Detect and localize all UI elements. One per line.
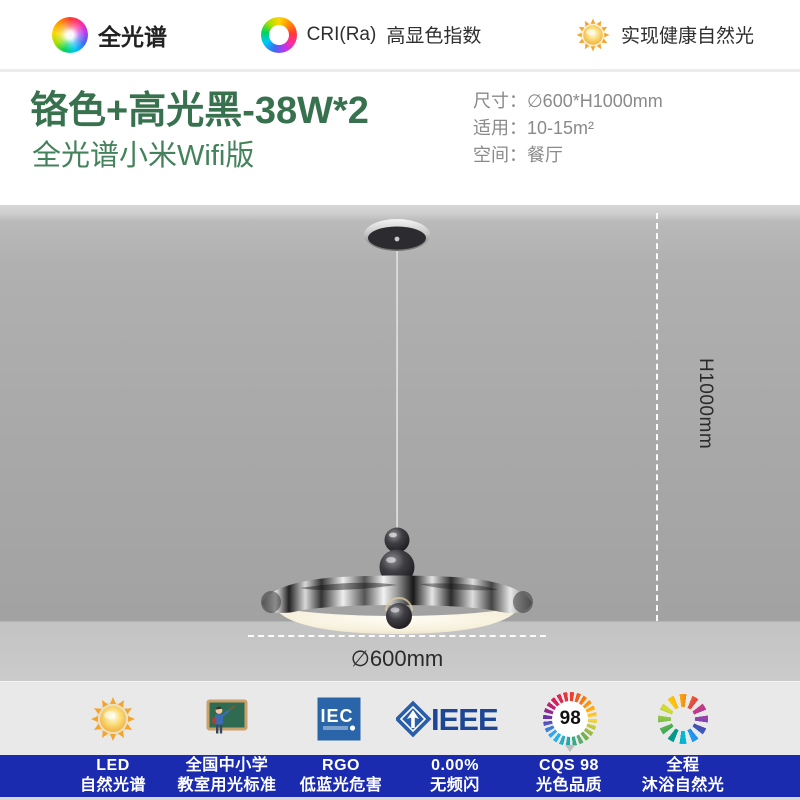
classroom-icon <box>201 695 251 743</box>
benefit-cri: CRI(Ra) 高显色指数 <box>261 17 482 53</box>
spec-area-label: 适用： <box>473 115 527 142</box>
iec-logo: IEC <box>316 696 362 742</box>
height-dimension-line <box>656 213 658 621</box>
label-line1: 全程 <box>666 756 699 776</box>
sun-icon <box>575 17 611 53</box>
iec-logo-text: IEC <box>320 706 353 726</box>
height-dimension-label: H1000mm <box>694 358 716 449</box>
spec-size: 尺寸： ∅600*H1000mm <box>473 88 663 115</box>
certification-icons: IEC IEEE 98 <box>0 680 800 755</box>
label-rgo: RGO 低蓝光危害 <box>284 756 398 796</box>
cqs-value: 98 <box>543 692 597 746</box>
spec-list: 尺寸： ∅600*H1000mm 适用： 10-15m² 空间： 餐厅 <box>473 88 663 169</box>
label-line1: CQS 98 <box>539 756 599 776</box>
ieee-logo: IEEE <box>396 696 514 742</box>
benefit-natural-light: 实现健康自然光 <box>575 17 754 53</box>
product-subtitle: 全光谱小米Wifi版 <box>32 138 369 174</box>
cri-sublabel: 高显色指数 <box>386 21 481 48</box>
cqs-badge-icon: 98 <box>543 692 597 746</box>
product-photo: H1000mm ∅600mm <box>0 205 800 680</box>
label-flicker: 0.00% 无频闪 <box>398 756 512 796</box>
ceiling-canopy <box>364 219 430 251</box>
spectrum-wheel-icon <box>52 17 88 53</box>
badge-ieee: IEEE <box>396 696 514 742</box>
spec-room-value: 餐厅 <box>527 142 563 169</box>
badge-cqs: 98 <box>514 692 627 746</box>
pendant-lamp <box>0 205 800 680</box>
label-classroom: 全国中小学 教室用光标准 <box>170 756 284 796</box>
cri-label: CRI(Ra) <box>307 24 377 46</box>
badge-classroom <box>169 695 282 743</box>
label-line1: 全国中小学 <box>186 756 269 776</box>
product-card: 全光谱 CRI(Ra) 高显色指数 实现健康自然光 <box>0 0 800 800</box>
label-line2: 沐浴自然光 <box>642 776 725 796</box>
label-natural: 全程 沐浴自然光 <box>626 756 740 796</box>
product-titles: 铬色+高光黑-38W*2 全光谱小米Wifi版 <box>30 88 369 174</box>
ieee-logo-text: IEEE <box>431 702 498 737</box>
spec-size-label: 尺寸： <box>473 88 527 115</box>
label-line1: RGO <box>322 756 360 776</box>
label-line2: 光色品质 <box>536 776 602 796</box>
diameter-dimension-label: ∅600mm <box>297 646 497 672</box>
label-cqs: CQS 98 光色品质 <box>512 756 626 796</box>
badge-iec: IEC <box>282 696 395 742</box>
spec-area: 适用： 10-15m² <box>473 115 663 142</box>
sun-icon <box>89 695 137 743</box>
top-benefit-bar: 全光谱 CRI(Ra) 高显色指数 实现健康自然光 <box>0 0 800 72</box>
diameter-dimension-line <box>248 635 546 637</box>
spec-size-value: ∅600*H1000mm <box>527 88 663 115</box>
spectrum-spinner-icon <box>658 694 708 744</box>
natural-light-label: 实现健康自然光 <box>621 21 754 48</box>
label-line1: LED <box>96 756 130 776</box>
product-title: 铬色+高光黑-38W*2 <box>30 88 369 134</box>
cqs-tail <box>565 745 575 752</box>
cri-ring-icon <box>261 17 297 53</box>
badge-spectrum <box>627 694 740 744</box>
benefit-label: 全光谱 <box>98 18 167 52</box>
spec-room-label: 空间： <box>473 142 527 169</box>
label-line2: 教室用光标准 <box>177 776 276 796</box>
label-line2: 无频闪 <box>430 776 480 796</box>
benefit-full-spectrum: 全光谱 <box>52 17 167 53</box>
spec-room: 空间： 餐厅 <box>473 142 663 169</box>
suspension-wire <box>396 251 398 531</box>
spec-area-value: 10-15m² <box>527 115 594 142</box>
label-line1: 0.00% <box>431 756 479 776</box>
label-line2: 低蓝光危害 <box>300 776 383 796</box>
product-header: 铬色+高光黑-38W*2 全光谱小米Wifi版 尺寸： ∅600*H1000mm… <box>0 72 800 205</box>
label-line2: 自然光谱 <box>80 776 146 796</box>
badge-led <box>56 695 169 743</box>
label-led: LED 自然光谱 <box>56 756 170 796</box>
certification-labels: LED 自然光谱 全国中小学 教室用光标准 RGO 低蓝光危害 0.00% 无频… <box>0 755 800 797</box>
